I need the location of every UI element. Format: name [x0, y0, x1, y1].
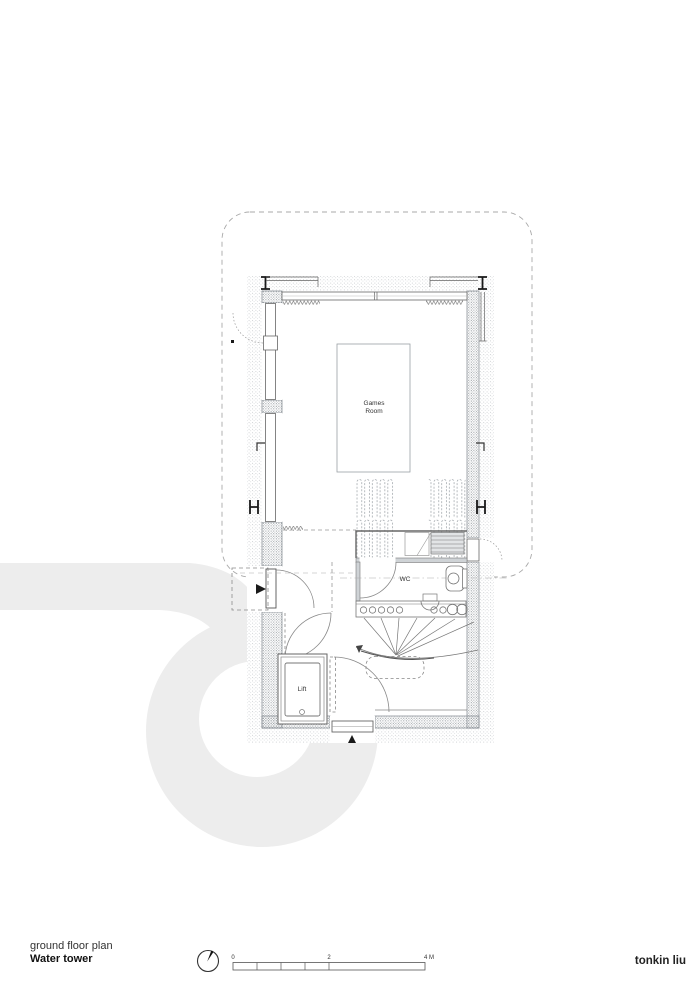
games-room-label: Games — [364, 400, 386, 407]
left-window-upper — [262, 303, 282, 400]
top-glazing — [282, 292, 467, 300]
rack-left — [356, 477, 395, 558]
right-side-door — [467, 538, 502, 562]
scale-bar: 0 2 4 M — [231, 955, 434, 970]
title-block: ground floor plan Water tower — [30, 940, 113, 965]
toilet — [446, 566, 467, 591]
scale-tick-2: 2 — [327, 955, 331, 961]
left-window-lower — [262, 413, 282, 522]
drawing-title: ground floor plan — [30, 940, 113, 952]
north-needle-icon — [207, 951, 213, 962]
firm-logo-text: tonkin liu — [635, 955, 686, 967]
bottom-entrance-door — [330, 716, 375, 743]
scale-tick-4: 4 M — [424, 955, 434, 961]
games-room-label: Room — [365, 408, 382, 415]
floor-plan-drawing: Games Room WC — [0, 0, 700, 990]
drawing-sheet: Games Room WC — [0, 0, 700, 990]
scale-tick-0: 0 — [231, 955, 235, 961]
north-arrow — [198, 951, 219, 972]
lift: Lift — [278, 654, 327, 724]
wc-label: WC — [400, 576, 411, 583]
project-name: Water tower — [30, 953, 93, 965]
lift-label: Lift — [298, 686, 307, 693]
